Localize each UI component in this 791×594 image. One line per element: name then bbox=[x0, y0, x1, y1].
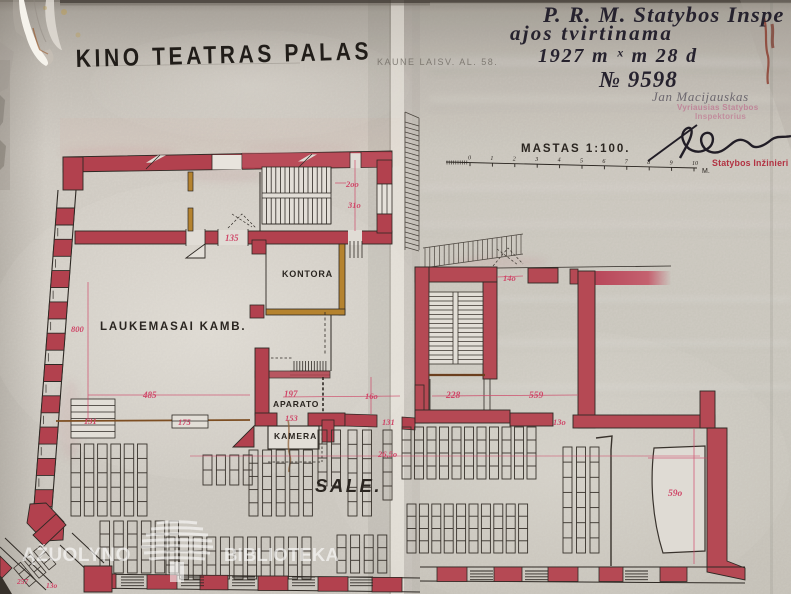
svg-text:31o: 31o bbox=[347, 200, 361, 210]
svg-text:10: 10 bbox=[692, 161, 698, 167]
svg-text:Inspektorius: Inspektorius bbox=[695, 112, 746, 121]
svg-text:2oo: 2oo bbox=[345, 179, 359, 189]
svg-text:4: 4 bbox=[558, 157, 561, 164]
svg-text:KAMERA: KAMERA bbox=[274, 431, 317, 441]
svg-text:1: 1 bbox=[490, 156, 493, 162]
svg-text:ĄŽUOLYNO: ĄŽUOLYNO bbox=[22, 544, 131, 566]
svg-text:485: 485 bbox=[142, 390, 157, 400]
svg-text:1927 m ˣ m 28 d: 1927 m ˣ m 28 d bbox=[538, 45, 698, 67]
svg-text:800: 800 bbox=[71, 324, 85, 334]
svg-text:16o: 16o bbox=[365, 391, 378, 401]
svg-text:KAUNE LAISV. AL. 58.: KAUNE LAISV. AL. 58. bbox=[377, 57, 498, 67]
svg-text:135: 135 bbox=[225, 233, 239, 243]
svg-text:MASTAS 1:100.: MASTAS 1:100. bbox=[521, 143, 631, 155]
svg-text:131: 131 bbox=[382, 417, 395, 427]
svg-text:153: 153 bbox=[285, 413, 299, 423]
svg-text:59o: 59o bbox=[668, 489, 683, 499]
svg-text:ajos tvirtinama: ajos tvirtinama bbox=[510, 21, 673, 45]
svg-text:257: 257 bbox=[16, 577, 29, 586]
svg-text:228: 228 bbox=[445, 391, 461, 401]
svg-text:8: 8 bbox=[647, 160, 650, 166]
svg-text:559: 559 bbox=[529, 391, 544, 401]
svg-text:2: 2 bbox=[513, 157, 516, 163]
svg-text:13o: 13o bbox=[553, 417, 566, 427]
svg-text:5: 5 bbox=[580, 158, 583, 164]
svg-text:13o: 13o bbox=[46, 581, 58, 590]
svg-text:9: 9 bbox=[670, 160, 673, 166]
svg-text:3: 3 bbox=[534, 157, 538, 163]
svg-text:Statybos Inžinieri: Statybos Inžinieri bbox=[712, 158, 788, 168]
svg-text:6: 6 bbox=[602, 159, 605, 165]
svg-text:M.: M. bbox=[702, 168, 710, 175]
svg-text:KONTORA: KONTORA bbox=[282, 269, 333, 279]
svg-text:APARATO: APARATO bbox=[273, 399, 319, 409]
svg-text:175: 175 bbox=[178, 417, 192, 427]
svg-text:LAUKEMASAI KAMB.: LAUKEMASAI KAMB. bbox=[100, 321, 246, 333]
svg-text:14o: 14o bbox=[503, 273, 516, 283]
svg-text:26,5o: 26,5o bbox=[377, 449, 397, 459]
svg-text:131: 131 bbox=[84, 416, 97, 426]
svg-text:BIBLIOTEKA: BIBLIOTEKA bbox=[224, 544, 339, 565]
svg-text:0: 0 bbox=[468, 156, 471, 162]
svg-text:Jan Macijauskas: Jan Macijauskas bbox=[652, 89, 749, 104]
svg-text:197: 197 bbox=[284, 389, 298, 399]
svg-text:Vyriausias Statybos: Vyriausias Statybos bbox=[677, 103, 759, 112]
svg-text:SALE.: SALE. bbox=[315, 475, 382, 496]
